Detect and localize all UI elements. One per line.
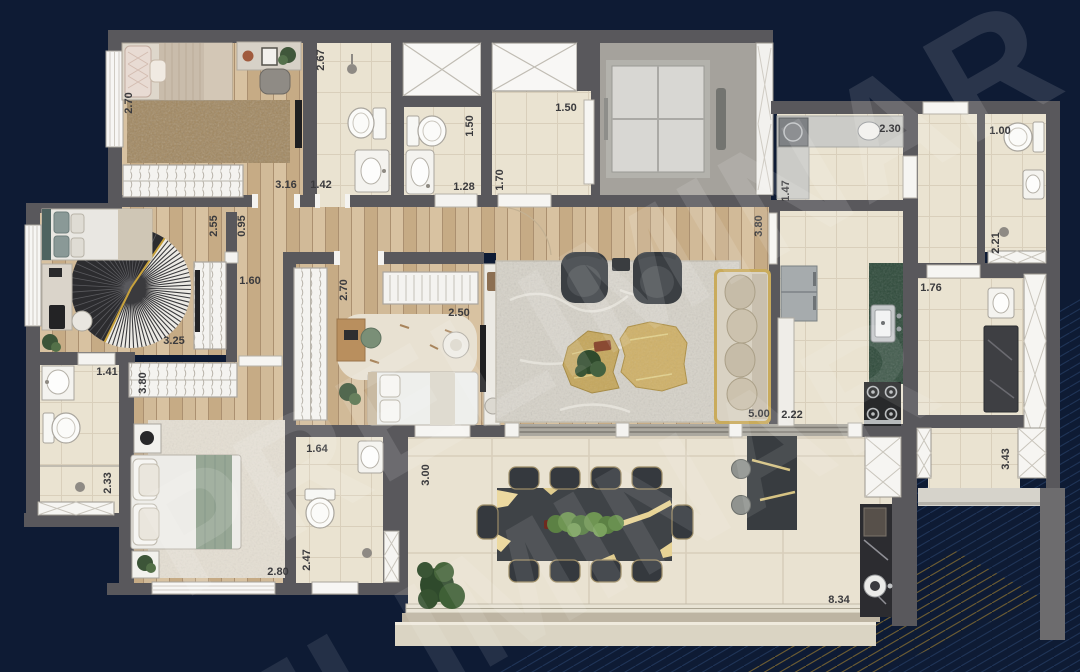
svg-text:2.70: 2.70: [123, 92, 135, 113]
svg-text:1.70: 1.70: [494, 169, 506, 190]
svg-text:1.60: 1.60: [239, 275, 260, 287]
svg-text:2.67: 2.67: [315, 49, 327, 70]
svg-text:3.80: 3.80: [137, 372, 149, 393]
svg-text:1.50: 1.50: [555, 102, 576, 114]
svg-text:1.28: 1.28: [453, 181, 474, 193]
svg-text:3.43: 3.43: [1000, 448, 1012, 469]
svg-text:3.16: 3.16: [275, 179, 296, 191]
svg-text:0.95: 0.95: [236, 215, 248, 236]
svg-text:8.34: 8.34: [828, 594, 850, 606]
svg-text:2.21: 2.21: [990, 232, 1002, 253]
svg-text:1.42: 1.42: [310, 179, 331, 191]
svg-text:1.41: 1.41: [96, 366, 117, 378]
svg-text:2.70: 2.70: [338, 279, 350, 300]
svg-text:1.76: 1.76: [920, 282, 941, 294]
svg-text:2.55: 2.55: [208, 215, 220, 236]
svg-text:1.50: 1.50: [464, 115, 476, 136]
svg-text:3.25: 3.25: [163, 335, 184, 347]
